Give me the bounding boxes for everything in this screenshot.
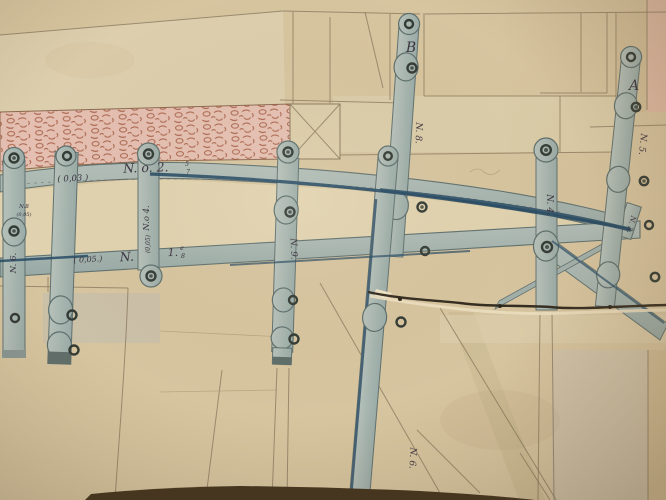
photographed-drawing: B A ( 0,03 ) N. o. 2. 5 7 ( 0,05.) N. 1.… (0, 0, 666, 500)
right-shading-overlay (0, 0, 666, 500)
truss-drawing-canvas: B A ( 0,03 ) N. o. 2. 5 7 ( 0,05.) N. 1.… (0, 0, 666, 500)
